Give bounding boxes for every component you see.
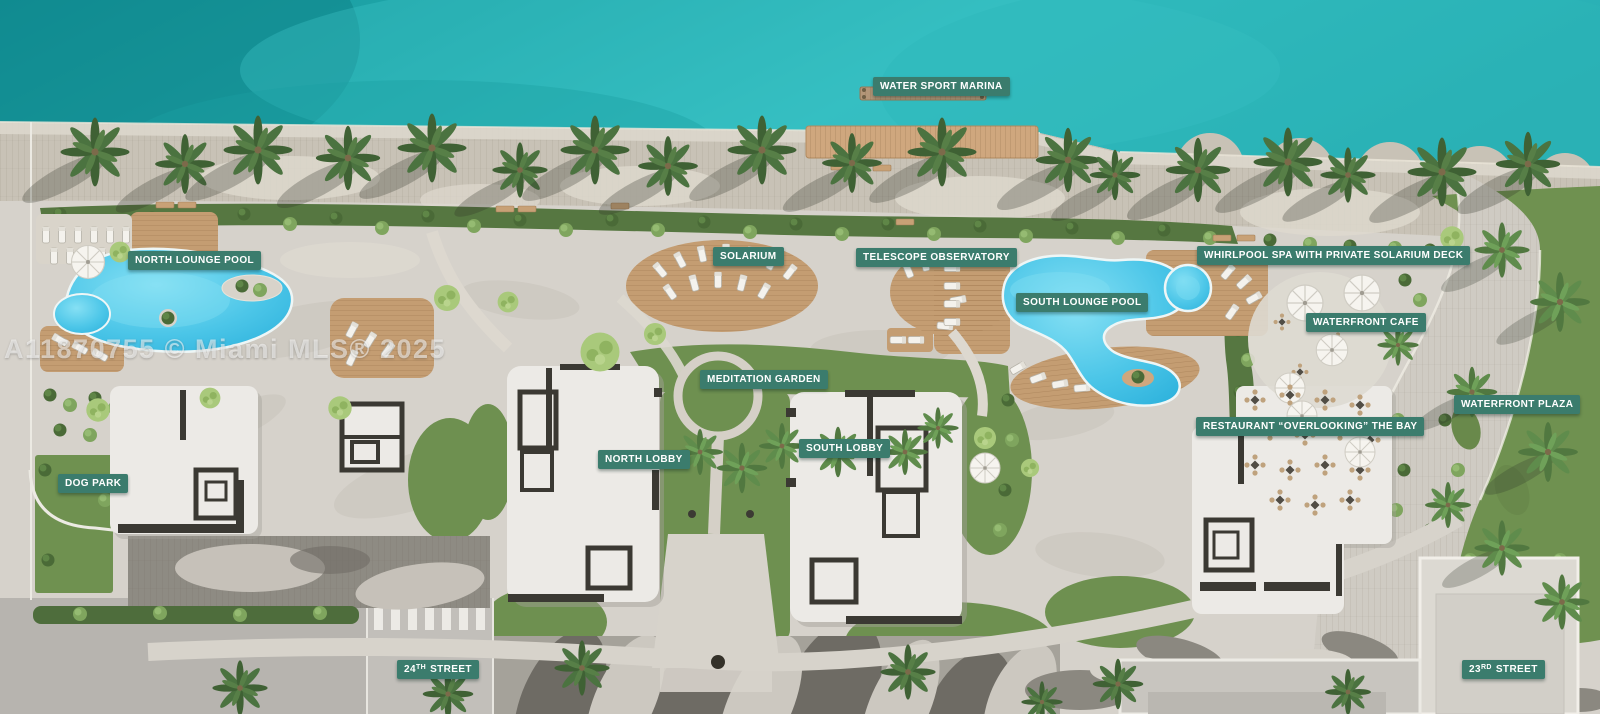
bottom-roof-structure	[1120, 660, 1420, 714]
label-meditation-garden: MEDITATION GARDEN	[700, 370, 828, 389]
label-waterfront-cafe: WATERFRONT CAFE	[1306, 313, 1426, 332]
label-north-lobby: NORTH LOBBY	[598, 450, 690, 469]
label-dog-park: DOG PARK	[58, 474, 128, 493]
street-ordinal: TH	[416, 664, 426, 671]
site-plan-canvas: WATER SPORT MARINA NORTH LOUNGE POOL SOL…	[0, 0, 1600, 714]
label-whirlpool-spa: WHIRLPOOL SPA WITH PRIVATE SOLARIUM DECK	[1197, 246, 1470, 265]
street-word: STREET	[1496, 664, 1538, 675]
label-water-sport-marina: WATER SPORT MARINA	[873, 77, 1010, 96]
label-restaurant-overlooking-the-bay: RESTAURANT “OVERLOOKING” THE BAY	[1196, 417, 1424, 436]
street-number: 24	[404, 664, 416, 675]
north-kids-pool-water	[54, 294, 110, 334]
label-23rd-street: 23RDSTREET	[1462, 660, 1545, 679]
label-solarium: SOLARIUM	[713, 247, 784, 266]
north-tower	[507, 364, 664, 607]
label-south-lounge-pool: SOUTH LOUNGE POOL	[1016, 293, 1148, 312]
meditation-garden-circle	[678, 356, 758, 436]
label-24th-street: 24THSTREET	[397, 660, 479, 679]
street-ordinal: RD	[1481, 664, 1492, 671]
label-telescope-observatory: TELESCOPE OBSERVATORY	[856, 248, 1017, 267]
label-waterfront-plaza: WATERFRONT PLAZA	[1454, 395, 1580, 414]
street-word: STREET	[430, 664, 472, 675]
mls-watermark: A11870755 © Miami MLS® 2025	[4, 334, 446, 365]
label-south-lobby: SOUTH LOBBY	[799, 439, 890, 458]
garage-structure	[342, 404, 402, 470]
street-number: 23	[1469, 664, 1481, 675]
label-north-lounge-pool: NORTH LOUNGE POOL	[128, 251, 261, 270]
northwest-building	[110, 386, 262, 539]
